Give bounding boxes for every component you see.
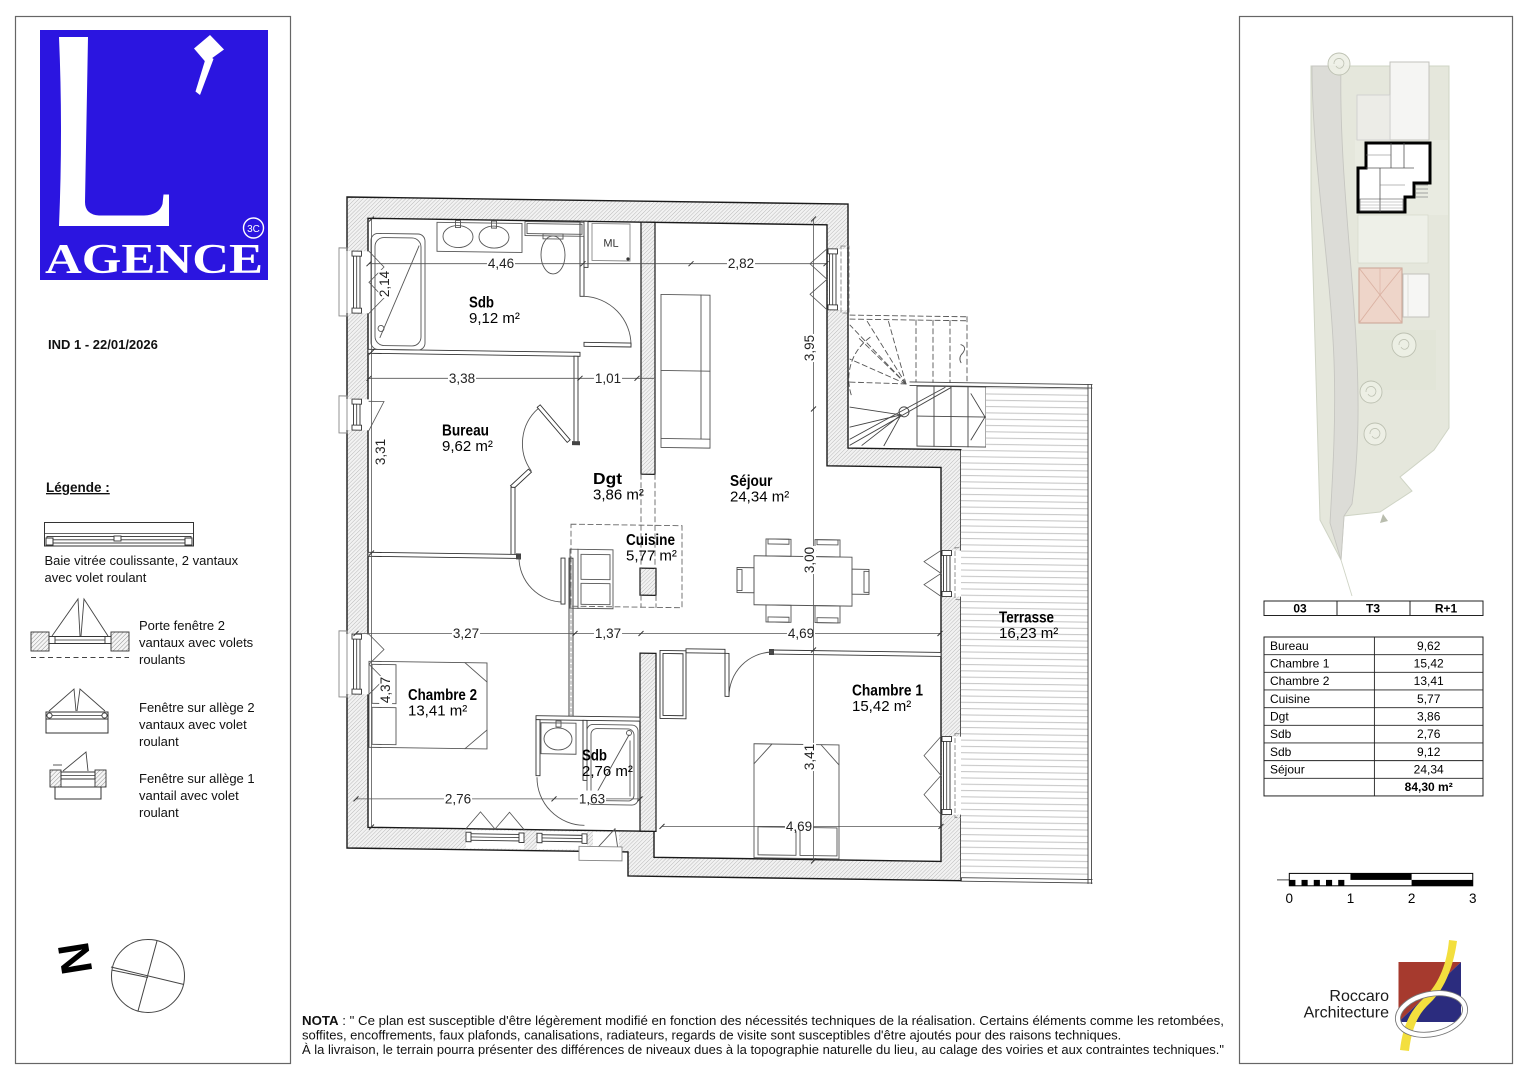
svg-text:15,42 m²: 15,42 m² bbox=[852, 698, 911, 715]
svg-text:Sdb: Sdb bbox=[469, 295, 494, 312]
svg-text:84,30 m²: 84,30 m² bbox=[1405, 780, 1453, 794]
svg-text:Porte fenêtre 2: Porte fenêtre 2 bbox=[139, 618, 225, 633]
svg-text:Bureau: Bureau bbox=[1270, 639, 1309, 653]
svg-text:3,00: 3,00 bbox=[802, 547, 817, 573]
svg-text:13,41 m²: 13,41 m² bbox=[408, 703, 467, 720]
svg-text:3,86 m²: 3,86 m² bbox=[593, 487, 644, 504]
svg-text:AGENCE: AGENCE bbox=[45, 237, 263, 283]
svg-text:3,38: 3,38 bbox=[449, 371, 475, 386]
svg-text:roulants: roulants bbox=[139, 652, 186, 667]
svg-text:Dgt: Dgt bbox=[1270, 709, 1289, 723]
svg-text:3,41: 3,41 bbox=[802, 744, 817, 770]
svg-text:9,62 m²: 9,62 m² bbox=[442, 438, 493, 455]
svg-text:Bureau: Bureau bbox=[442, 423, 489, 440]
svg-text:13,41: 13,41 bbox=[1414, 674, 1444, 688]
svg-text:9,12 m²: 9,12 m² bbox=[469, 310, 520, 327]
svg-text:Architecture: Architecture bbox=[1304, 1005, 1389, 1022]
svg-text:1,37: 1,37 bbox=[595, 626, 621, 641]
svg-text:24,34 m²: 24,34 m² bbox=[730, 489, 789, 506]
svg-text:Dgt: Dgt bbox=[593, 471, 622, 488]
svg-text:3,27: 3,27 bbox=[453, 626, 479, 641]
svg-text:NOTA : " Ce plan est susceptib: NOTA : " Ce plan est susceptible d'être … bbox=[302, 1013, 1224, 1028]
svg-text:3C: 3C bbox=[247, 224, 260, 235]
svg-text:2,76: 2,76 bbox=[445, 791, 471, 806]
svg-text:0: 0 bbox=[1286, 891, 1294, 906]
svg-text:1,01: 1,01 bbox=[595, 371, 621, 386]
svg-text:Sdb: Sdb bbox=[1270, 727, 1292, 741]
svg-text:Roccaro: Roccaro bbox=[1329, 988, 1389, 1005]
svg-text:Terrasse: Terrasse bbox=[999, 610, 1054, 627]
svg-text:Cuisine: Cuisine bbox=[1270, 692, 1310, 706]
svg-text:1,63: 1,63 bbox=[579, 791, 605, 806]
svg-text:2,76 m²: 2,76 m² bbox=[582, 763, 633, 780]
svg-text:1: 1 bbox=[1347, 891, 1355, 906]
svg-text:T3: T3 bbox=[1366, 602, 1380, 616]
svg-text:2,14: 2,14 bbox=[377, 270, 392, 297]
svg-text:Fenêtre sur allège 2: Fenêtre sur allège 2 bbox=[139, 700, 255, 715]
svg-text:9,62: 9,62 bbox=[1417, 639, 1441, 653]
svg-text:4,37: 4,37 bbox=[378, 677, 393, 703]
svg-text:IND 1 - 22/01/2026: IND 1 - 22/01/2026 bbox=[48, 337, 158, 352]
svg-text:16,23 m²: 16,23 m² bbox=[999, 625, 1058, 642]
svg-text:ML: ML bbox=[603, 238, 618, 250]
svg-text:Cuisine: Cuisine bbox=[626, 532, 675, 549]
svg-text:Chambre 2: Chambre 2 bbox=[408, 687, 477, 704]
svg-text:Légende :: Légende : bbox=[46, 480, 110, 495]
svg-text:vantaux avec volet: vantaux avec volet bbox=[139, 717, 247, 732]
svg-text:24,34: 24,34 bbox=[1414, 762, 1444, 776]
svg-text:avec volet roulant: avec volet roulant bbox=[45, 570, 147, 585]
svg-text:Sdb: Sdb bbox=[582, 748, 607, 765]
svg-text:5,77: 5,77 bbox=[1417, 692, 1441, 706]
svg-text:Séjour: Séjour bbox=[1270, 762, 1305, 776]
svg-text:4,69: 4,69 bbox=[786, 819, 812, 834]
svg-text:Chambre 1: Chambre 1 bbox=[852, 683, 923, 700]
svg-text:Sdb: Sdb bbox=[1270, 745, 1292, 759]
svg-text:R+1: R+1 bbox=[1435, 602, 1458, 616]
svg-text:Chambre 2: Chambre 2 bbox=[1270, 674, 1330, 688]
svg-text:15,42: 15,42 bbox=[1414, 656, 1444, 670]
svg-text:3,86: 3,86 bbox=[1417, 709, 1441, 723]
svg-text:roulant: roulant bbox=[139, 805, 179, 820]
svg-text:4,69: 4,69 bbox=[788, 626, 814, 641]
svg-text:Chambre 1: Chambre 1 bbox=[1270, 656, 1330, 670]
svg-text:vantaux avec volets: vantaux avec volets bbox=[139, 635, 254, 650]
svg-text:3,95: 3,95 bbox=[802, 335, 817, 361]
svg-text:Fenêtre sur allège 1: Fenêtre sur allège 1 bbox=[139, 771, 255, 786]
svg-text:Séjour: Séjour bbox=[730, 473, 773, 490]
svg-text:03: 03 bbox=[1293, 602, 1307, 616]
svg-text:Baie vitrée coulissante, 2 van: Baie vitrée coulissante, 2 vantaux bbox=[45, 553, 239, 568]
svg-text:2: 2 bbox=[1408, 891, 1416, 906]
svg-text:vantail avec volet: vantail avec volet bbox=[139, 788, 239, 803]
svg-text:2,76: 2,76 bbox=[1417, 727, 1441, 741]
svg-text:soffites, encoffrements, faux: soffites, encoffrements, faux plafonds, … bbox=[302, 1028, 1121, 1043]
svg-text:3,31: 3,31 bbox=[373, 439, 388, 465]
svg-text:4,46: 4,46 bbox=[488, 256, 514, 271]
svg-text:À la livraison, le terrain pou: À la livraison, le terrain pourra présen… bbox=[302, 1042, 1224, 1057]
svg-text:9,12: 9,12 bbox=[1417, 745, 1441, 759]
svg-text:3: 3 bbox=[1469, 891, 1477, 906]
svg-text:2,82: 2,82 bbox=[728, 256, 754, 271]
svg-text:roulant: roulant bbox=[139, 734, 179, 749]
svg-text:5,77 m²: 5,77 m² bbox=[626, 548, 677, 565]
